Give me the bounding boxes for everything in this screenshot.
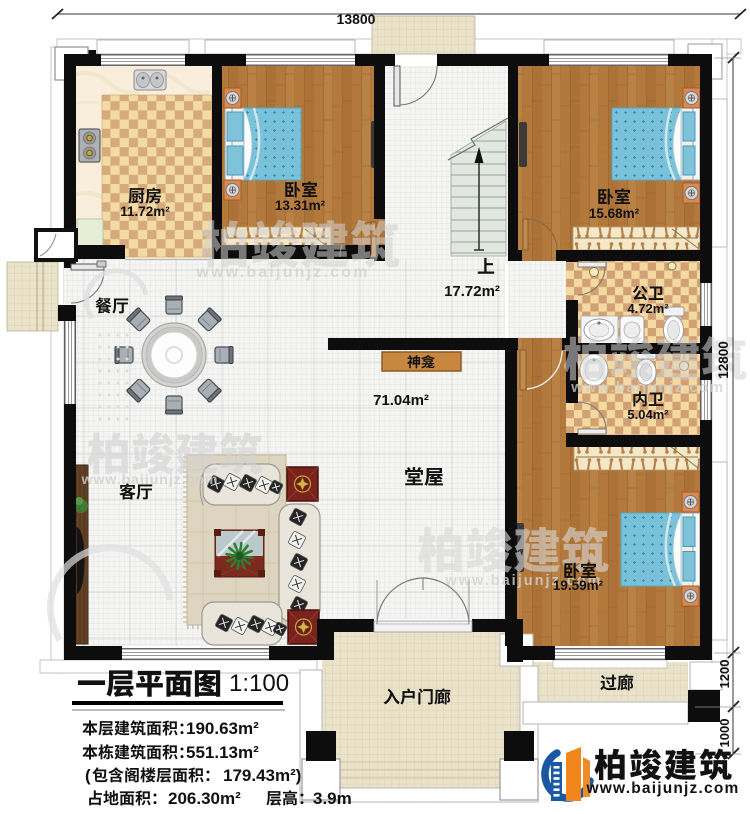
svg-text:3.9m: 3.9m — [313, 789, 352, 808]
svg-text:4.72m²: 4.72m² — [627, 301, 669, 316]
svg-text:17.72m²: 17.72m² — [444, 283, 500, 300]
svg-text:5.04m²: 5.04m² — [627, 407, 669, 422]
svg-text:190.63m²: 190.63m² — [186, 719, 259, 738]
svg-text:1:100: 1:100 — [229, 670, 289, 697]
svg-text:(: ( — [85, 766, 91, 785]
svg-text:1200: 1200 — [717, 660, 732, 689]
svg-text:19.59m²: 19.59m² — [553, 578, 604, 593]
svg-text:15.68m²: 15.68m² — [589, 206, 640, 221]
svg-text:12800: 12800 — [716, 341, 731, 379]
svg-text:206.30m²: 206.30m² — [168, 789, 241, 808]
svg-text:71.04m²: 71.04m² — [373, 392, 429, 409]
svg-text:www.baijunjz.com: www.baijunjz.com — [570, 379, 724, 396]
svg-text:179.43m²): 179.43m²) — [223, 766, 301, 785]
svg-text:13800: 13800 — [337, 11, 376, 27]
svg-text:www.baijunjz.com: www.baijunjz.com — [195, 264, 369, 281]
svg-text:11.72m²: 11.72m² — [120, 204, 170, 219]
svg-text:1000: 1000 — [717, 719, 732, 748]
svg-text:551.13m²: 551.13m² — [186, 743, 259, 762]
svg-text:www.baijunjz.com: www.baijunjz.com — [586, 780, 740, 797]
svg-text:13.31m²: 13.31m² — [275, 198, 326, 213]
